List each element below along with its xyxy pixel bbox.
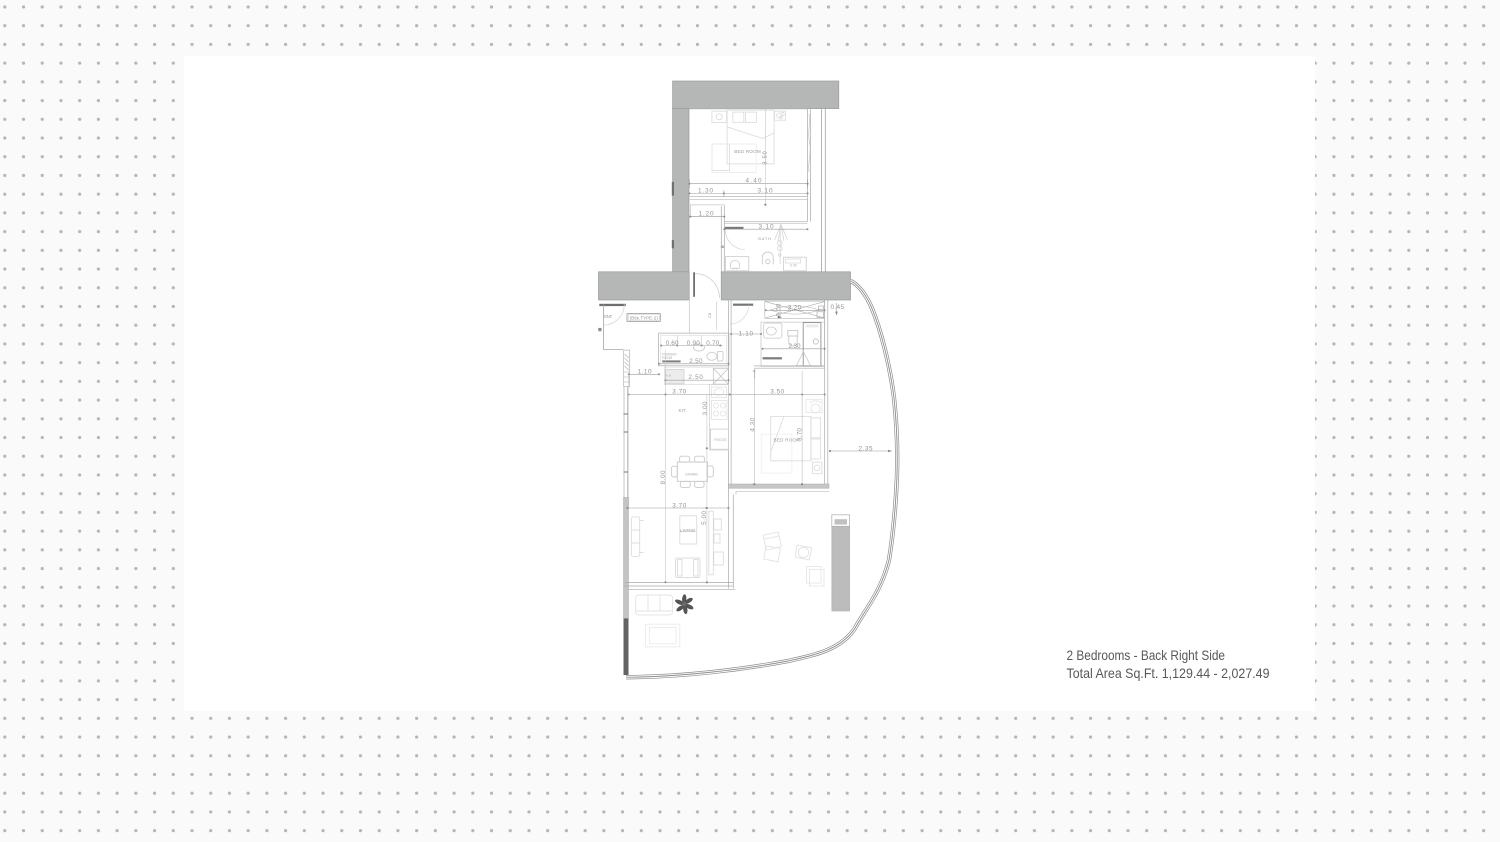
svg-text:Total Area Sq.Ft. 1,129.44 - 2: Total Area Sq.Ft. 1,129.44 - 2,027.49 <box>1067 665 1270 681</box>
svg-text:3.70: 3.70 <box>672 389 686 396</box>
svg-text:3.10: 3.10 <box>759 224 774 231</box>
svg-text:3.50: 3.50 <box>762 151 768 165</box>
svg-text:BED ROOM: BED ROOM <box>734 149 761 154</box>
svg-text:0.60: 0.60 <box>666 340 679 347</box>
svg-text:KIT.: KIT. <box>679 408 687 413</box>
svg-text:0.45: 0.45 <box>831 304 845 311</box>
svg-text:2.50: 2.50 <box>688 374 703 381</box>
svg-text:3.70: 3.70 <box>672 502 686 509</box>
svg-text:0.90: 0.90 <box>790 264 797 268</box>
svg-text:LIVING: LIVING <box>680 528 696 533</box>
svg-text:8.00: 8.00 <box>660 470 667 484</box>
svg-text:1.10: 1.10 <box>739 330 754 337</box>
svg-text:BED ROOM: BED ROOM <box>774 438 801 443</box>
svg-text:4.30: 4.30 <box>750 417 757 431</box>
svg-text:0.70: 0.70 <box>706 340 719 347</box>
svg-text:FRIDGE: FRIDGE <box>714 438 728 442</box>
svg-text:2.50: 2.50 <box>689 358 703 365</box>
svg-text:5.00: 5.00 <box>701 510 708 524</box>
svg-text:2.30: 2.30 <box>789 343 801 350</box>
svg-text:ENT.: ENT. <box>604 314 613 319</box>
svg-text:3.00: 3.00 <box>702 401 709 415</box>
svg-text:2 Bedrooms - Back Right Side: 2 Bedrooms - Back Right Side <box>1067 647 1226 663</box>
svg-text:3.50: 3.50 <box>770 389 784 396</box>
svg-text:1.20: 1.20 <box>699 211 714 218</box>
svg-text:C8: C8 <box>707 312 712 318</box>
svg-text:BATH: BATH <box>758 237 771 241</box>
svg-text:1.10: 1.10 <box>638 369 652 376</box>
svg-text:0.90: 0.90 <box>687 340 700 347</box>
svg-text:ROOM: ROOM <box>662 356 672 360</box>
svg-text:0.00: 0.00 <box>776 303 783 316</box>
svg-text:4.40: 4.40 <box>746 178 762 185</box>
svg-text:3.10: 3.10 <box>758 187 773 194</box>
svg-text:(B9s.TYPE-2): (B9s.TYPE-2) <box>630 316 659 321</box>
svg-text:W.M.: W.M. <box>665 374 672 378</box>
svg-text:3.20: 3.20 <box>788 304 802 311</box>
svg-text:1.30: 1.30 <box>698 187 713 194</box>
svg-text:DINING: DINING <box>685 472 698 476</box>
svg-text:2.35: 2.35 <box>859 445 873 452</box>
